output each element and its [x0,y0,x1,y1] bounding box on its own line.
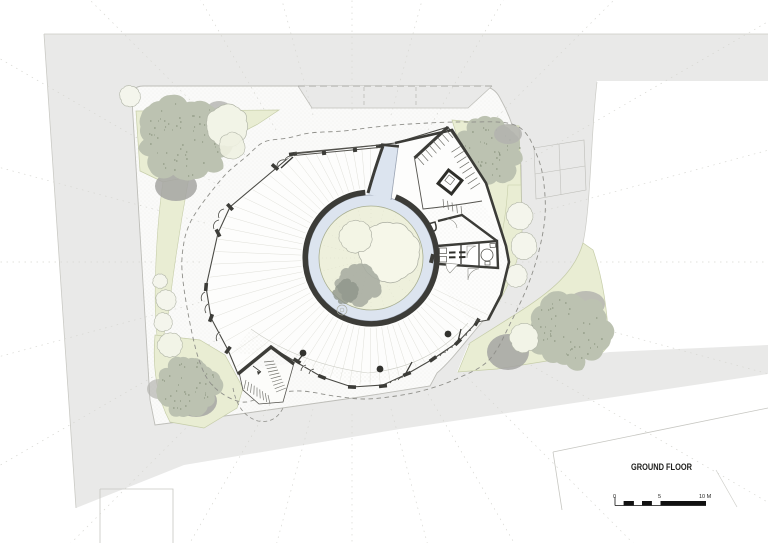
svg-text:GROUND FLOOR: GROUND FLOOR [631,462,692,473]
svg-text:0: 0 [613,494,616,500]
svg-text:5: 5 [658,494,661,500]
svg-text:10 M: 10 M [699,494,712,500]
